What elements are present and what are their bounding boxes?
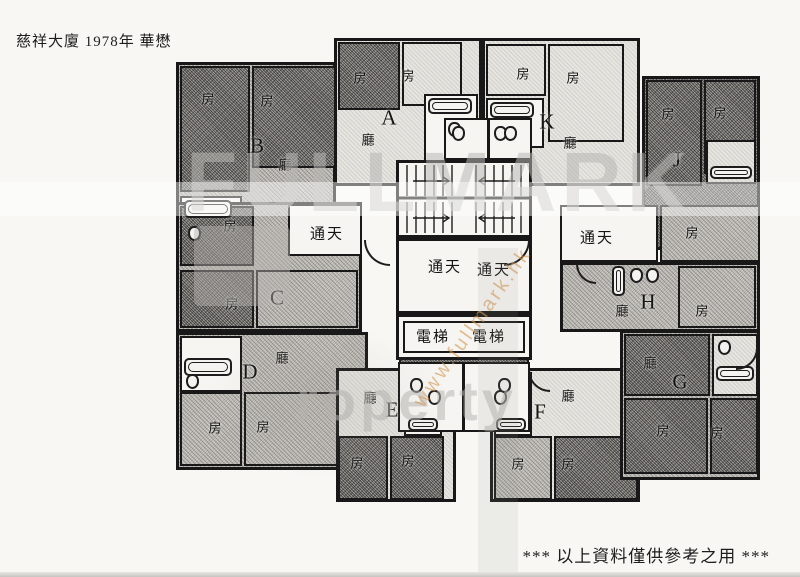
door-arc-icon (364, 240, 390, 266)
room-label-bedroom: 房 (511, 454, 524, 473)
unit-label-g: G (672, 370, 687, 395)
footer-disclaimer: *** 以上資料僅供參考之用 *** (523, 542, 771, 567)
room-label-bedroom: 房 (353, 68, 366, 87)
page-title: 慈祥大廈 1978年 華懋 (16, 30, 172, 51)
room-label-bedroom: 房 (656, 421, 669, 440)
room-label-living: 廳 (643, 353, 656, 372)
unit-a-bedroom-1 (338, 42, 400, 110)
room-label-bedroom: 房 (401, 66, 414, 85)
scan-edge-bottom (0, 572, 800, 577)
room-label-lift: 電梯 (416, 326, 450, 347)
toilet-icon (186, 374, 199, 389)
room-label-living: 廳 (275, 348, 288, 367)
room-label-living: 廳 (615, 301, 628, 320)
watermark-logo-square (194, 226, 290, 306)
room-label-bedroom: 房 (260, 91, 273, 110)
toilet-icon (718, 340, 731, 355)
watermark-brand-text: FULLMARK (186, 134, 693, 231)
unit-label-f: F (534, 400, 546, 425)
bathtub-icon (716, 366, 754, 381)
room-label-bedroom: 房 (561, 454, 574, 473)
room-label-bedroom: 房 (661, 104, 674, 123)
room-label-bedroom: 房 (256, 417, 269, 436)
bathtub-icon (428, 98, 472, 114)
room-label-bedroom: 房 (201, 89, 214, 108)
unit-label-d: D (242, 360, 257, 385)
room-label-bedroom: 房 (695, 301, 708, 320)
room-label-bedroom: 房 (713, 103, 726, 122)
room-label-living: 廳 (561, 386, 574, 405)
room-label-bedroom: 房 (401, 451, 414, 470)
unit-label-a: A (381, 106, 396, 131)
unit-g-hall (624, 334, 710, 396)
unit-label-h: H (640, 290, 655, 315)
washbasin-icon (646, 268, 659, 283)
bathtub-icon (710, 166, 752, 179)
unit-h-bedroom-2 (678, 266, 756, 328)
scanned-floorplan-page: 慈祥大廈 1978年 華懋 *** 以上資料僅供參考之用 *** (0, 0, 800, 577)
toilet-icon (630, 268, 643, 283)
unit-label-k: K (539, 110, 554, 135)
bathtub-icon (490, 102, 534, 118)
bathtub-icon (612, 266, 625, 296)
room-label-bedroom: 房 (710, 423, 723, 442)
room-label-bedroom: 房 (566, 68, 579, 87)
room-label-lightwell: 通天 (428, 256, 462, 277)
room-label-bedroom: 房 (516, 64, 529, 83)
room-label-bedroom: 房 (208, 418, 221, 437)
unit-k-bedroom-2 (548, 44, 624, 142)
